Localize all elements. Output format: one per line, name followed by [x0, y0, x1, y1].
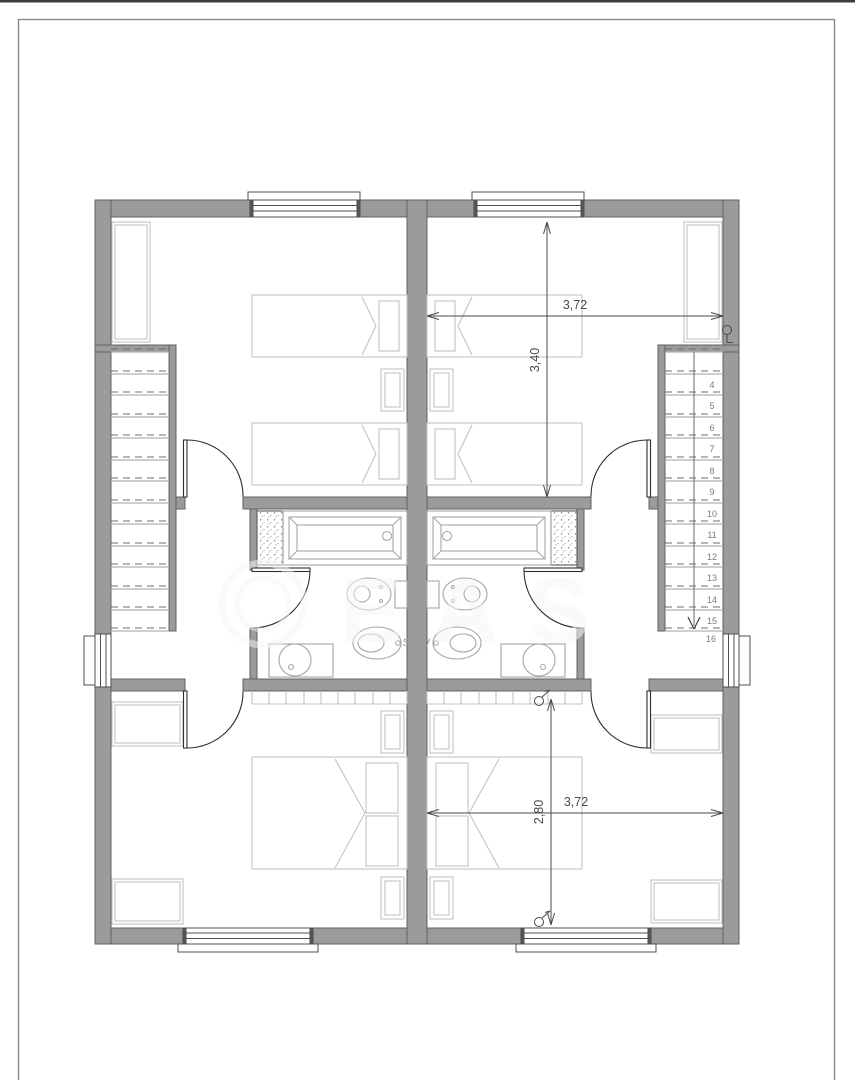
nightstand [430, 877, 453, 919]
floor-plan-drawing: 4 5 6 7 8 9 10 11 12 13 14 15 16 [0, 0, 855, 1080]
dim-upper-width [427, 313, 723, 320]
dim-lower-width [427, 810, 723, 817]
wardrobe-lower-right [651, 715, 722, 753]
watermark: EAS EAS S V [222, 560, 620, 662]
dim-label-lower-width: 3,72 [564, 795, 588, 809]
tread-number: 5 [709, 401, 714, 411]
wardrobe-lower-right [651, 880, 722, 923]
window-side-right [723, 634, 750, 687]
door-lower-left-bedroom [184, 691, 244, 748]
wardrobe-upper-left [112, 222, 150, 342]
window-top-left [248, 192, 360, 217]
tread-number: 7 [709, 444, 714, 454]
bed-single [427, 423, 582, 485]
closet-strip [427, 691, 582, 704]
window-bottom-left [178, 928, 318, 952]
landing-number: 16 [706, 634, 716, 644]
bed-single [427, 295, 582, 357]
dresser [112, 702, 183, 746]
window-top-right [472, 192, 584, 217]
wardrobe-upper-right [684, 222, 722, 342]
bed-single [252, 295, 407, 357]
tread-number: 10 [707, 509, 717, 519]
shower-pan [551, 511, 577, 565]
dim-label-lower-depth: 2,80 [532, 800, 546, 824]
shower-pan [257, 511, 283, 565]
dim-label-upper-width: 3,72 [563, 298, 587, 312]
dim-upper-depth [544, 222, 551, 497]
floor-plan-page: 4 5 6 7 8 9 10 11 12 13 14 15 16 [0, 0, 855, 1080]
watermark-large-text: EAS [340, 560, 619, 662]
nightstand [430, 711, 453, 753]
door-upper-right-bedroom [591, 440, 651, 497]
dim-lower-depth [548, 699, 555, 925]
tread-number: 6 [709, 423, 714, 433]
closet-strip [252, 691, 407, 704]
tread-number: 11 [707, 530, 716, 540]
wall-top-left [95, 200, 250, 217]
tread-number: 4 [709, 380, 714, 390]
wall-left-upper [95, 200, 111, 634]
tread-number: 13 [707, 573, 717, 583]
tread-number: 9 [709, 487, 714, 497]
watermark-small-text: S V [403, 637, 436, 649]
tread-number: 12 [707, 552, 717, 562]
window-side-left [84, 634, 111, 687]
tread-number: 8 [709, 466, 714, 476]
wall-right-lower [723, 687, 739, 944]
nightstand [381, 877, 404, 919]
window-bottom-right [516, 928, 656, 952]
bathtub [283, 511, 407, 565]
nightstand [430, 369, 453, 411]
tread-number: 15 [707, 616, 717, 626]
dim-label-upper-depth: 3,40 [528, 348, 542, 372]
wall-top-right [584, 200, 739, 217]
door-upper-left-bedroom [184, 440, 244, 497]
bed-double [252, 757, 407, 869]
tread-number: 14 [707, 595, 717, 605]
nightstand [381, 369, 404, 411]
nightstand [381, 711, 404, 753]
wall-right-upper [723, 200, 739, 634]
dresser [112, 879, 183, 924]
door-lower-right-bedroom [591, 691, 651, 748]
wall-left-lower [95, 687, 111, 944]
washbasin [269, 644, 333, 677]
stair-left [111, 349, 169, 631]
bathtub [427, 511, 551, 565]
bed-single [252, 423, 407, 485]
stair-right-numbers: 4 5 6 7 8 9 10 11 12 13 14 15 16 [706, 380, 717, 644]
window-top-edge [0, 0, 855, 3]
